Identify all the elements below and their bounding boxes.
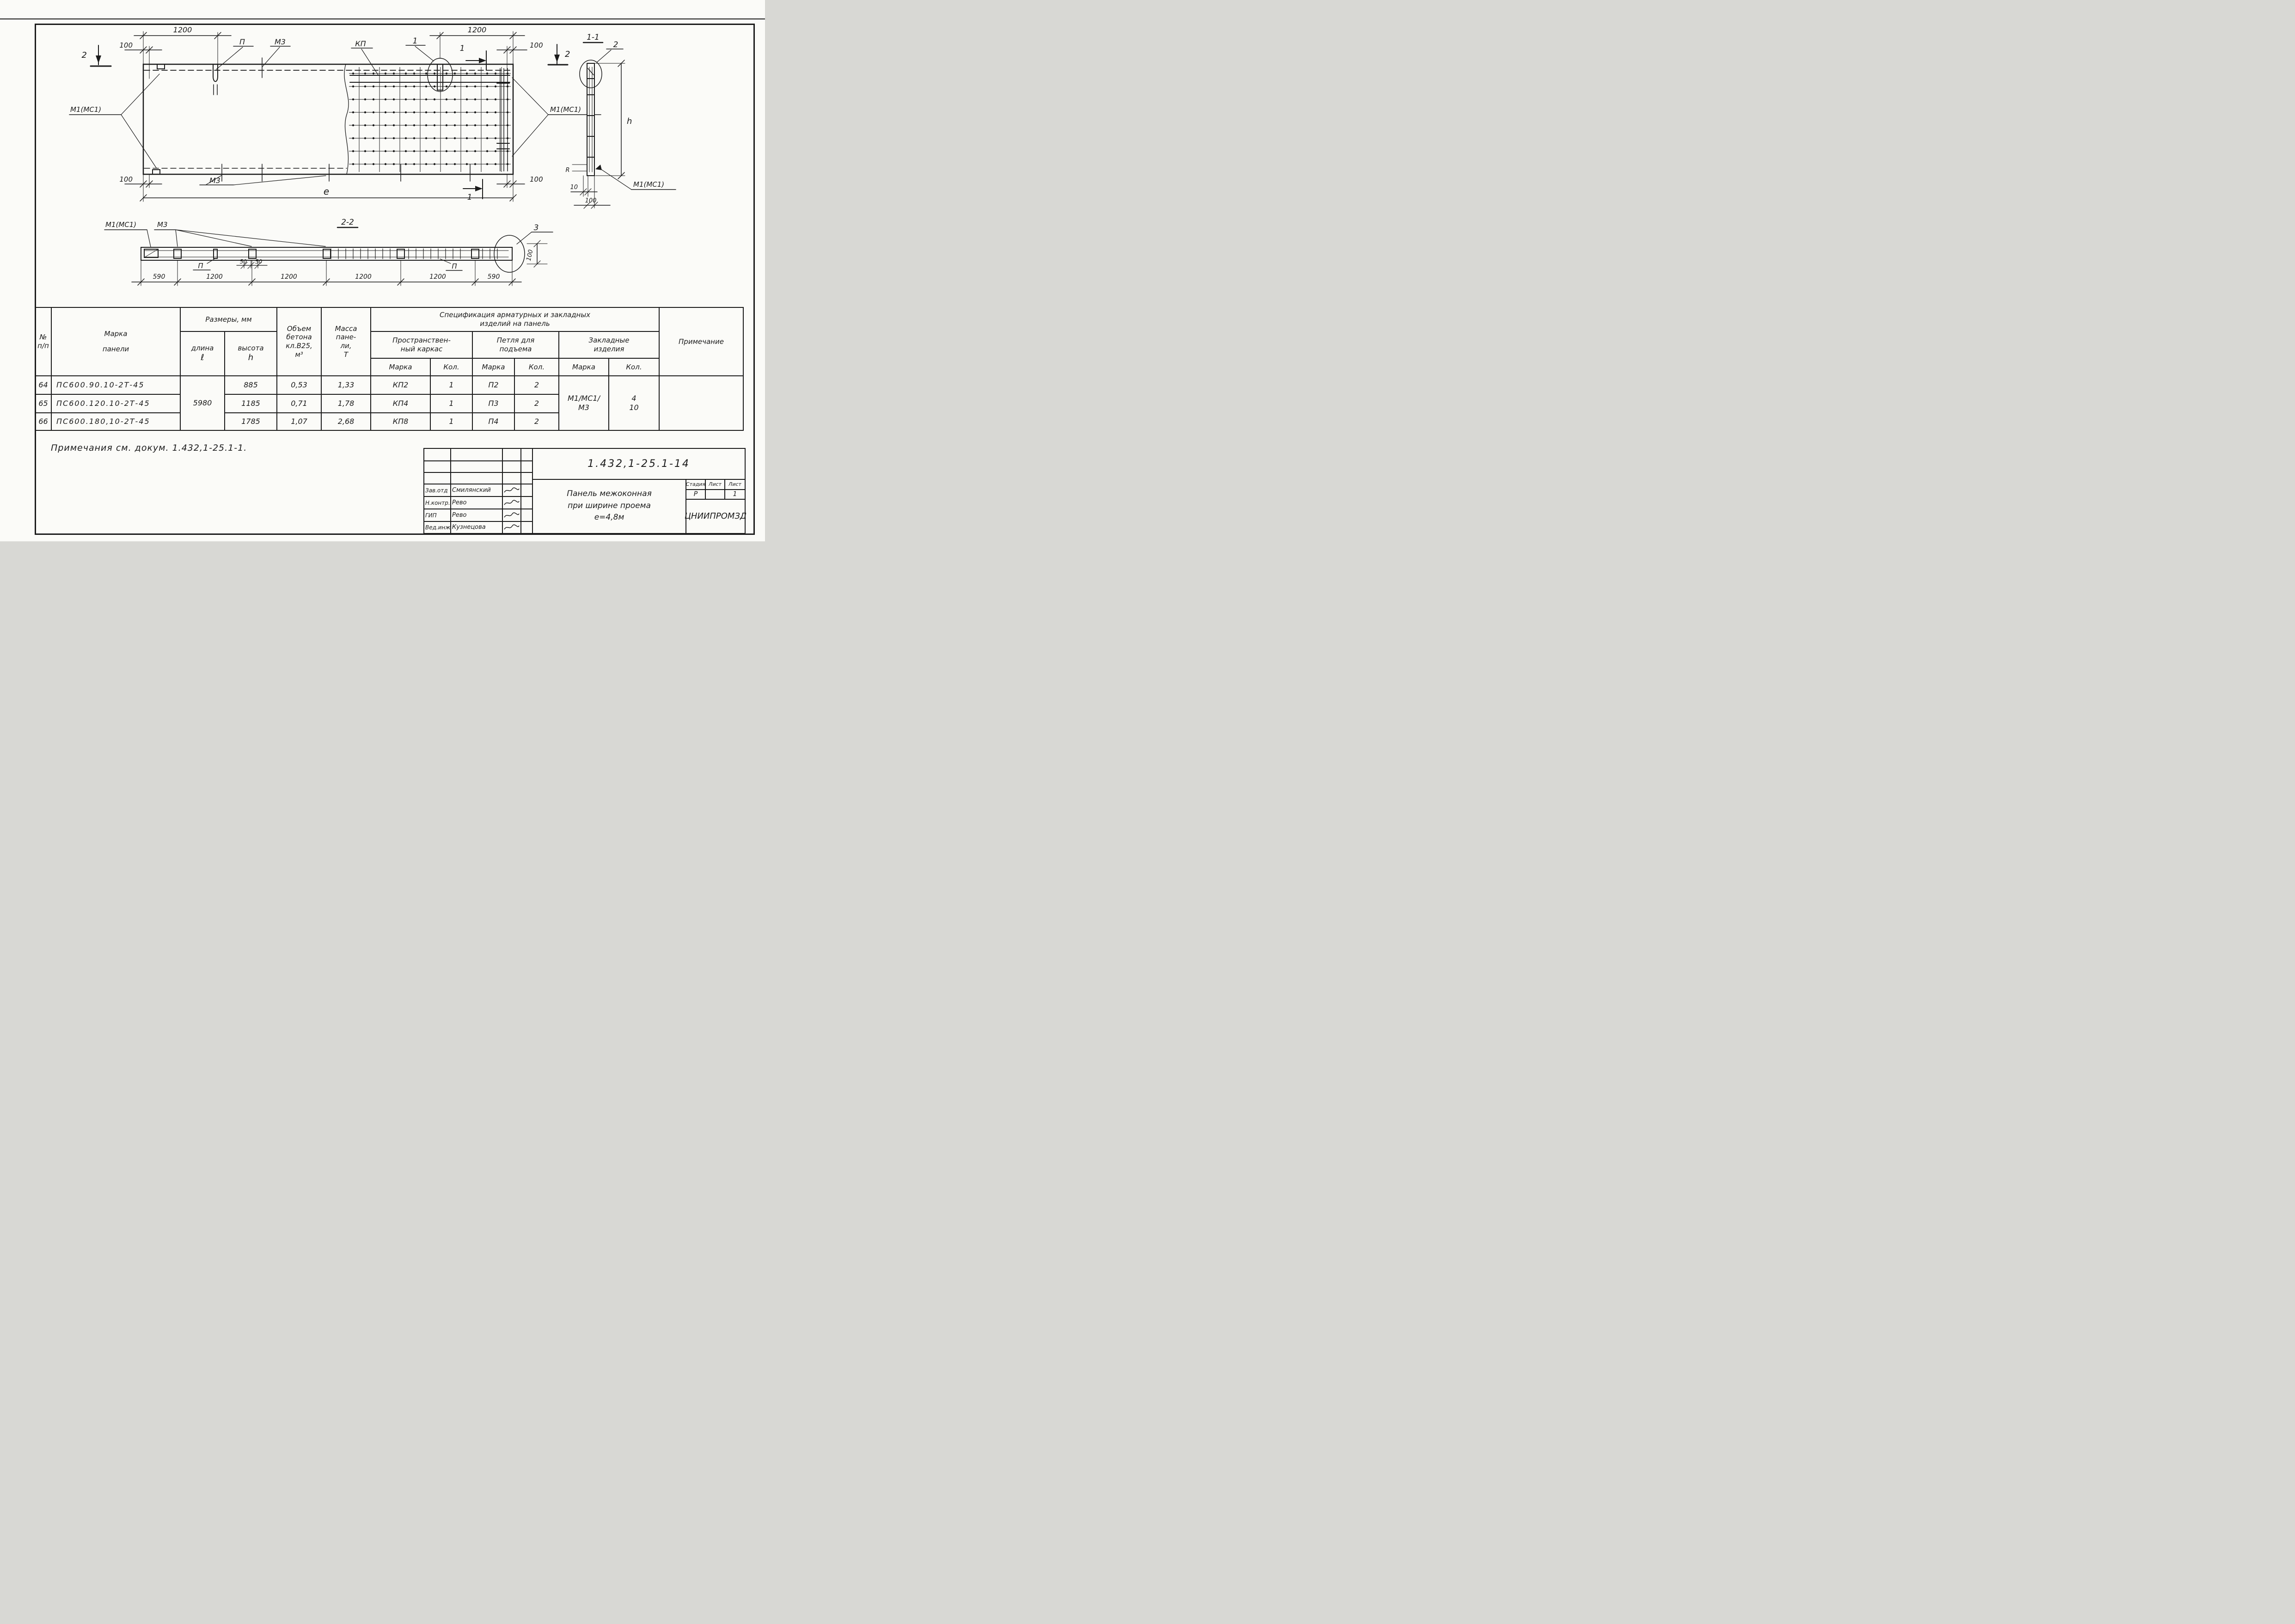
cell-vysota: 885 xyxy=(225,376,277,394)
sig-name: Рево xyxy=(452,497,502,509)
sheet-label: Лист xyxy=(706,479,724,489)
cell-petlya-kol: 2 xyxy=(514,376,559,394)
reinforcement-grid xyxy=(349,67,511,172)
marka-line2: панели xyxy=(53,345,179,354)
num-line1: № xyxy=(37,333,50,342)
section-1-1-title: 1-1 xyxy=(587,33,600,42)
zakl-marka-line1: М1/МС1/ xyxy=(560,394,607,403)
dim-1200-1: 1200 xyxy=(206,273,223,281)
spec-line1: Спецификация арматурных и закладных xyxy=(372,311,658,319)
col-header-spec: Спецификация арматурных и закладных изде… xyxy=(371,307,659,331)
cell-petlya-marka: П4 xyxy=(472,413,514,430)
vysota-symbol: h xyxy=(226,353,275,363)
label-m1-right: М1(МС1) xyxy=(550,105,581,114)
signature-scribble xyxy=(503,497,520,509)
cell-vysota: 1185 xyxy=(225,394,277,413)
cell-massa: 1,33 xyxy=(321,376,371,394)
cell-petlya-marka: П2 xyxy=(472,376,514,394)
plan-view xyxy=(69,31,601,202)
dim-100-bottom-right: 100 xyxy=(530,175,543,184)
dim-1200-top-right: 1200 xyxy=(468,25,487,34)
label-m3-top: М3 xyxy=(275,37,286,46)
subheader-karkas-marka: Марка xyxy=(371,358,430,376)
cell-marka: ПС600.180,10-2Т-45 xyxy=(51,413,180,430)
col-header-dlina: длина ℓ xyxy=(180,331,225,376)
sig-role: ГИП xyxy=(425,509,450,521)
col-header-num: № п/п xyxy=(35,307,51,376)
dlina-symbol: ℓ xyxy=(182,353,223,363)
label-m3-bottom: М3 xyxy=(209,176,220,185)
cell-karkas-kol: 1 xyxy=(430,394,472,413)
dim-1200-3: 1200 xyxy=(355,273,372,281)
cell-num: 66 xyxy=(35,413,51,430)
cell-obyem: 0,53 xyxy=(277,376,321,394)
col-header-petlya: Петля для подъема xyxy=(472,331,559,358)
section-mark-2-right-label: 2 xyxy=(565,49,570,59)
obyem-line4: м³ xyxy=(278,350,320,359)
subheader-zakl-marka: Марка xyxy=(559,358,609,376)
zakl-kol-line1: 4 xyxy=(610,394,658,403)
spec-line2: изделий на панель xyxy=(372,319,658,328)
cell-primechanie xyxy=(659,376,743,430)
specification-table: № п/п Марка панели Размеры, мм Объем бет… xyxy=(35,307,744,431)
dim-100-section: 100 xyxy=(585,197,597,204)
title-line2: при ширине проема xyxy=(568,500,651,512)
dim-100-rotated: 100 xyxy=(526,249,535,262)
label-p-right-section22: П xyxy=(452,262,457,270)
vysota-line1: высота xyxy=(226,344,275,353)
cell-marka: ПС600.120.10-2Т-45 xyxy=(51,394,180,413)
karkas-line1: Пространствен- xyxy=(372,336,471,345)
label-detail-2: 2 xyxy=(613,40,618,49)
obyem-line1: Объем xyxy=(278,325,320,333)
title-line1: Панель межоконная xyxy=(567,488,652,500)
cell-petlya-kol: 2 xyxy=(514,413,559,430)
label-p-top: П xyxy=(239,37,245,46)
massa-line3: ли, xyxy=(323,342,369,350)
label-p-left-section22: П xyxy=(198,262,203,270)
cell-karkas-marka: КП8 xyxy=(371,413,430,430)
label-kp: КП xyxy=(355,39,366,48)
cell-petlya-marka: П3 xyxy=(472,394,514,413)
panel-drawing: 1200 1200 100 100 100 100 е П М3 КП 1 1 … xyxy=(0,0,765,305)
sheets-value: 1 xyxy=(725,490,745,499)
zakl-kol-line2: 10 xyxy=(610,403,658,412)
massa-line2: пане- xyxy=(323,333,369,342)
stage-value: Р xyxy=(686,490,705,499)
col-header-vysota: высота h xyxy=(225,331,277,376)
section-2-2 xyxy=(104,227,553,286)
sig-name: Смилянский xyxy=(452,484,502,496)
drawing-title: Панель межоконная при ширине проема е=4,… xyxy=(533,480,685,532)
section-mark-2-left-label: 2 xyxy=(82,50,87,60)
cell-marka: ПС600.90.10-2Т-45 xyxy=(51,376,180,394)
signature-scribble xyxy=(503,509,520,521)
subheader-petlya-marka: Марка xyxy=(472,358,514,376)
stage-label: Стадия xyxy=(686,479,705,489)
signature-scribble xyxy=(503,521,520,533)
massa-line4: Т xyxy=(323,350,369,359)
col-header-karkas: Пространствен- ный каркас xyxy=(371,331,472,358)
obyem-line3: кл.В25, xyxy=(278,342,320,350)
organization-name: ЦНИИПРОМЗД xyxy=(686,500,745,532)
obyem-line2: бетона xyxy=(278,333,320,342)
cell-massa: 1,78 xyxy=(321,394,371,413)
dim-r: R xyxy=(565,167,569,174)
cell-petlya-kol: 2 xyxy=(514,394,559,413)
massa-line1: Масса xyxy=(323,325,369,333)
table-row: 64 ПС600.90.10-2Т-45 5980 885 0,53 1,33 … xyxy=(35,376,743,394)
col-header-marka: Марка панели xyxy=(51,307,180,376)
section-mark-1-bottom-label: 1 xyxy=(467,193,472,202)
cell-dlina-merged: 5980 xyxy=(180,376,225,430)
sig-role: Вед.инж xyxy=(425,521,450,533)
cell-karkas-kol: 1 xyxy=(430,413,472,430)
label-m1-section22: М1(МС1) xyxy=(105,221,136,229)
num-line2: п/п xyxy=(37,342,50,350)
cell-obyem: 0,71 xyxy=(277,394,321,413)
karkas-line2: ный каркас xyxy=(372,345,471,354)
subheader-petlya-kol: Кол. xyxy=(514,358,559,376)
sheet-value xyxy=(706,490,724,499)
drawing-sheet: 1200 1200 100 100 100 100 е П М3 КП 1 1 … xyxy=(0,0,765,541)
dim-50-left: 50 xyxy=(240,258,247,265)
sig-name: Кузнецова xyxy=(452,521,502,533)
document-number: 1.432,1-25.1-14 xyxy=(533,449,745,479)
label-m1-left: М1(МС1) xyxy=(70,105,101,114)
signature-scribble xyxy=(503,484,520,496)
dim-h: h xyxy=(627,116,632,126)
grid-line xyxy=(424,460,532,461)
label-m1-section11: М1(МС1) xyxy=(633,180,664,189)
cell-zakl-kol-merged: 4 10 xyxy=(609,376,659,430)
zakl-line1: Закладные xyxy=(560,336,658,345)
sig-role: Н.контр. xyxy=(425,497,450,509)
subheader-karkas-kol: Кол. xyxy=(430,358,472,376)
dim-100-top-right: 100 xyxy=(530,41,543,49)
spec-table: № п/п Марка панели Размеры, мм Объем бет… xyxy=(35,307,744,431)
cell-num: 65 xyxy=(35,394,51,413)
grid-line xyxy=(520,449,521,533)
dim-100-top-left: 100 xyxy=(119,41,133,49)
cell-karkas-kol: 1 xyxy=(430,376,472,394)
dim-1200-top-left: 1200 xyxy=(173,25,192,34)
title-line3: е=4,8м xyxy=(594,512,624,524)
title-block: Зав.отд Смилянский Н.контр. Рево ГИП Рев… xyxy=(423,448,746,534)
zakl-marka-line2: М3 xyxy=(560,403,607,412)
petlya-line2: подъема xyxy=(474,345,557,354)
label-detail-3: 3 xyxy=(534,223,539,233)
dim-100-bottom-left: 100 xyxy=(119,175,133,184)
section-2-2-title: 2-2 xyxy=(341,218,354,227)
label-detail-1: 1 xyxy=(413,37,418,46)
dim-590-1: 590 xyxy=(153,273,165,281)
subheader-zakl-kol: Кол. xyxy=(609,358,659,376)
dlina-line1: длина xyxy=(182,344,223,353)
notes-text: Примечания см. докум. 1.432,1-25.1-1. xyxy=(51,443,247,453)
dim-1200-4: 1200 xyxy=(429,273,446,281)
dim-10: 10 xyxy=(570,184,578,191)
petlya-line1: Петля для xyxy=(474,336,557,345)
dim-50-right: 50 xyxy=(255,258,263,265)
sheets-label: Лист xyxy=(725,479,745,489)
col-header-prim: Примечание xyxy=(659,307,743,376)
cell-num: 64 xyxy=(35,376,51,394)
cell-karkas-marka: КП4 xyxy=(371,394,430,413)
col-header-massa: Масса пане- ли, Т xyxy=(321,307,371,376)
marka-line1: Марка xyxy=(53,330,179,338)
cell-karkas-marka: КП2 xyxy=(371,376,430,394)
grid-line xyxy=(450,449,451,533)
cell-vysota: 1785 xyxy=(225,413,277,430)
dim-1200-2: 1200 xyxy=(281,273,297,281)
dim-590-2: 590 xyxy=(488,273,500,281)
grid-line xyxy=(424,472,532,473)
cell-zakl-marka-merged: М1/МС1/ М3 xyxy=(559,376,609,430)
sig-role: Зав.отд xyxy=(425,484,450,496)
cell-obyem: 1,07 xyxy=(277,413,321,430)
label-m3-section22: М3 xyxy=(157,221,168,229)
dim-e-overall: е xyxy=(324,186,329,197)
cell-massa: 2,68 xyxy=(321,413,371,430)
section-mark-1-top-label: 1 xyxy=(460,44,465,53)
sig-name: Рево xyxy=(452,509,502,521)
col-header-zakladnye: Закладные изделия xyxy=(559,331,659,358)
zakl-line2: изделия xyxy=(560,345,658,354)
col-header-razmery: Размеры, мм xyxy=(180,307,277,331)
col-header-obyem: Объем бетона кл.В25, м³ xyxy=(277,307,321,376)
